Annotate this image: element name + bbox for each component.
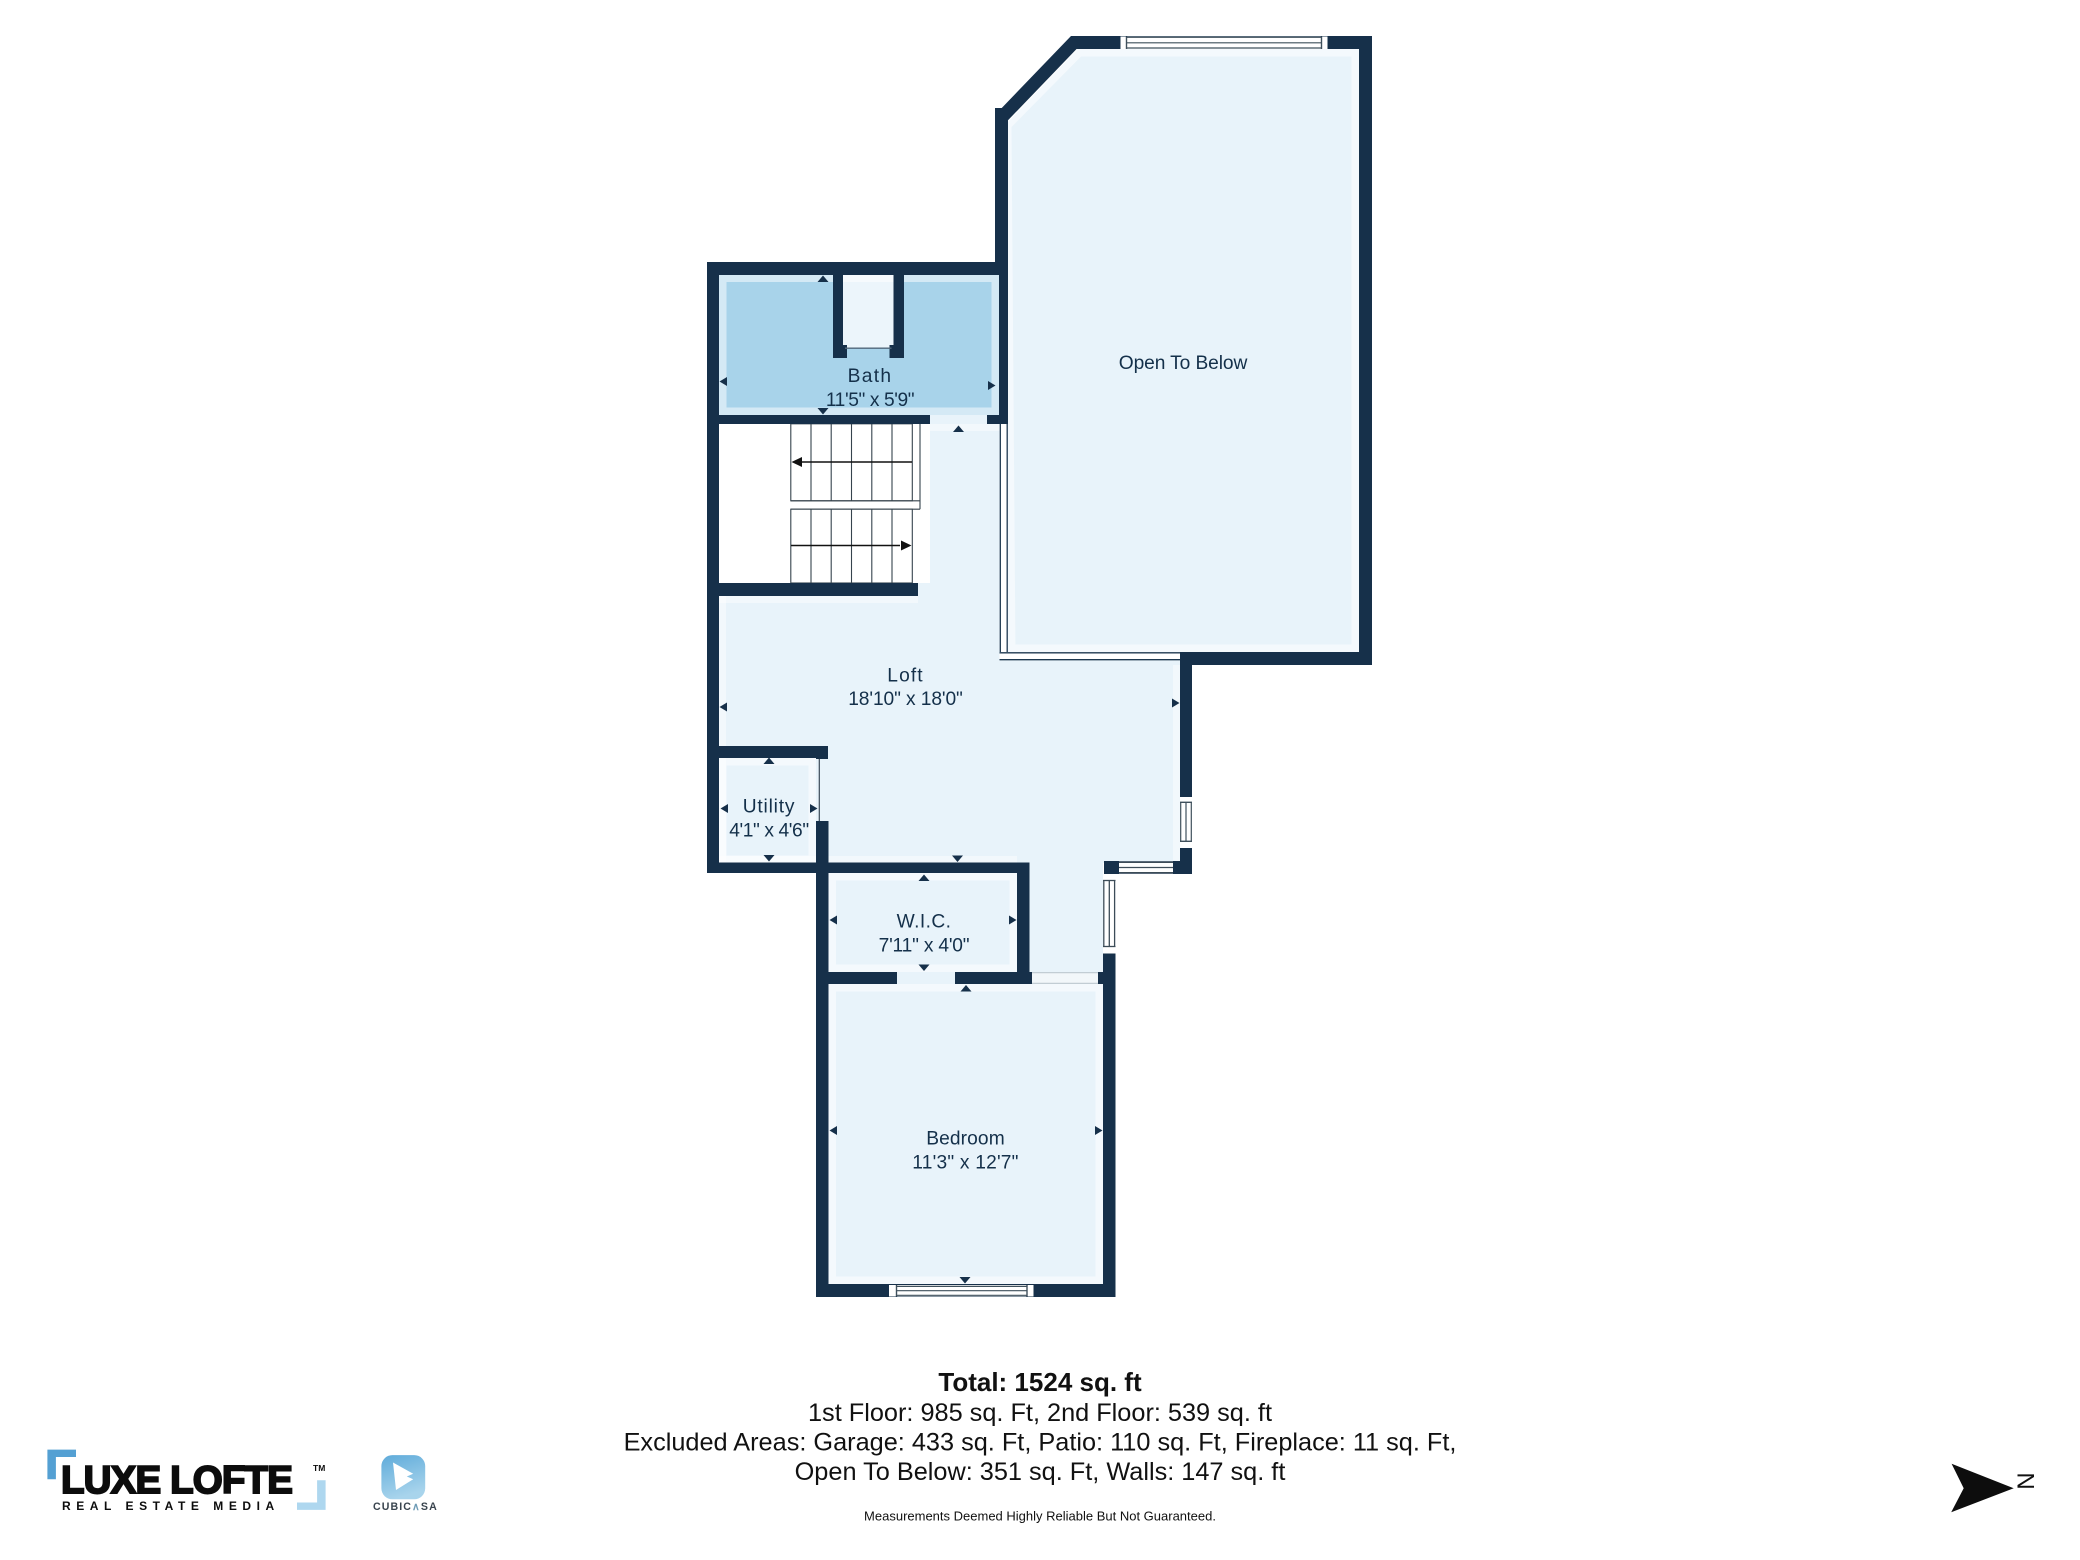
svg-text:7'11" x 4'0": 7'11" x 4'0" bbox=[879, 935, 970, 956]
svg-text:11'3" x 12'7": 11'3" x 12'7" bbox=[912, 1152, 1018, 1173]
svg-text:Measurements Deemed Highly Rel: Measurements Deemed Highly Reliable But … bbox=[864, 1509, 1216, 1524]
svg-text:Total: 1524 sq. ft: Total: 1524 sq. ft bbox=[938, 1367, 1142, 1397]
svg-text:Bath: Bath bbox=[848, 366, 893, 387]
svg-text:Loft: Loft bbox=[887, 665, 923, 686]
svg-text:Excluded Areas: Garage: 433 sq: Excluded Areas: Garage: 433 sq. Ft, Pati… bbox=[624, 1429, 1457, 1457]
svg-text:REAL ESTATE MEDIA: REAL ESTATE MEDIA bbox=[62, 1499, 280, 1513]
svg-text:4'1" x 4'6": 4'1" x 4'6" bbox=[729, 820, 809, 841]
svg-text:11'5" x 5'9": 11'5" x 5'9" bbox=[826, 390, 914, 411]
svg-text:CUBIC∧SA: CUBIC∧SA bbox=[373, 1501, 438, 1513]
svg-text:Bedroom: Bedroom bbox=[926, 1129, 1005, 1150]
svg-text:N: N bbox=[2012, 1472, 2039, 1489]
svg-text:Open To Below: 351 sq. Ft, Wal: Open To Below: 351 sq. Ft, Walls: 147 sq… bbox=[795, 1458, 1286, 1486]
svg-text:W.I.C.: W.I.C. bbox=[897, 912, 952, 933]
svg-text:18'10" x 18'0": 18'10" x 18'0" bbox=[848, 689, 963, 710]
svg-text:TM: TM bbox=[313, 1463, 325, 1473]
svg-text:LUXE LOFTE: LUXE LOFTE bbox=[61, 1459, 292, 1502]
svg-text:Open To Below: Open To Below bbox=[1119, 353, 1248, 374]
svg-text:Utility: Utility bbox=[743, 797, 796, 818]
svg-text:1st Floor: 985 sq. Ft, 2nd Flo: 1st Floor: 985 sq. Ft, 2nd Floor: 539 sq… bbox=[808, 1399, 1272, 1427]
